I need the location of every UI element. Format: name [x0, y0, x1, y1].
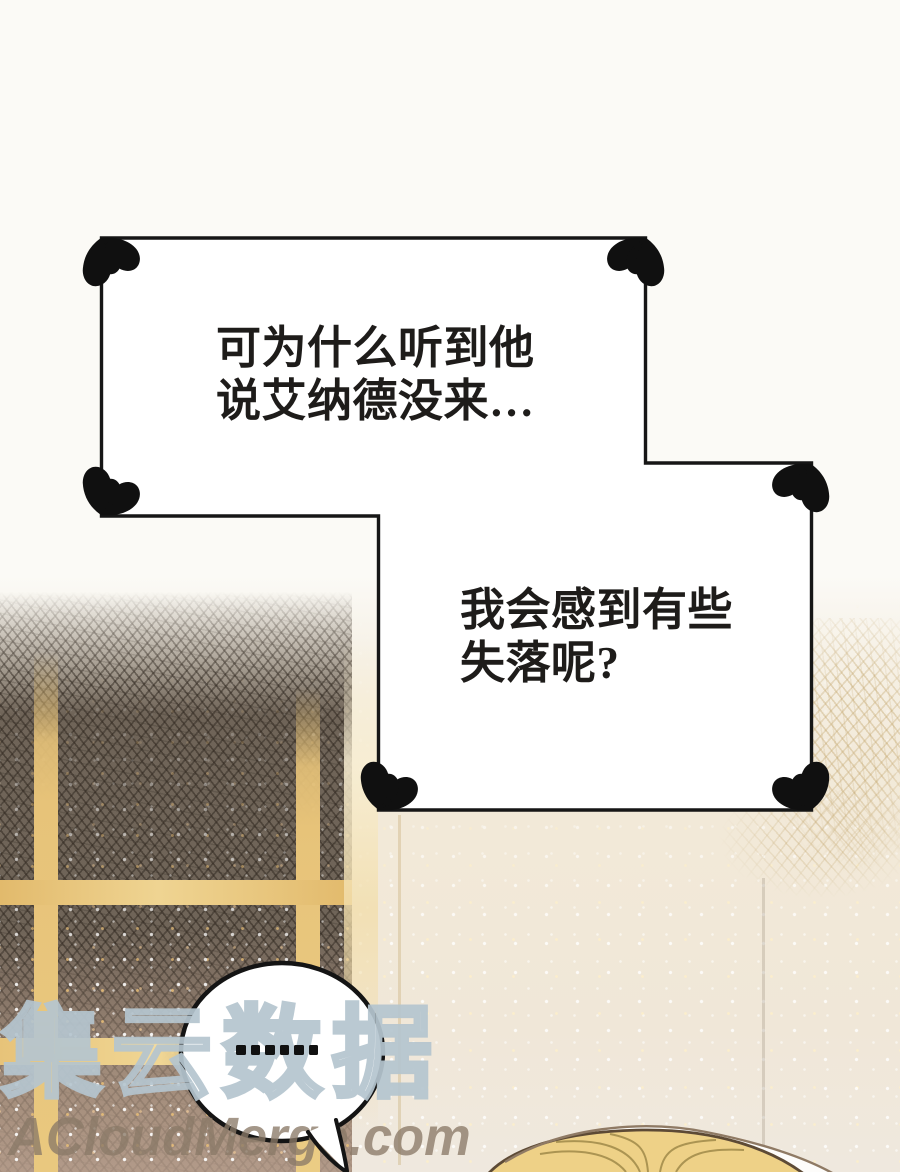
- foreground-art: [0, 0, 900, 1172]
- ellipsis-dot: [280, 1045, 290, 1055]
- speech-bubble-tail: [308, 1120, 347, 1172]
- hair-dome: [488, 1130, 804, 1172]
- ellipsis-dot: [309, 1045, 319, 1055]
- ellipsis-dot: [251, 1045, 261, 1055]
- ellipsis-dot: [265, 1045, 275, 1055]
- character-hair: [488, 1126, 834, 1172]
- ellipsis-dot: [236, 1045, 246, 1055]
- comic-page: 可为什么听到他 说艾纳德没来… 我会感到有些 失落呢? 集云数据 ACloudM…: [0, 0, 900, 1172]
- ellipsis-dots: ……: [236, 1045, 318, 1055]
- ellipsis-dot: [294, 1045, 304, 1055]
